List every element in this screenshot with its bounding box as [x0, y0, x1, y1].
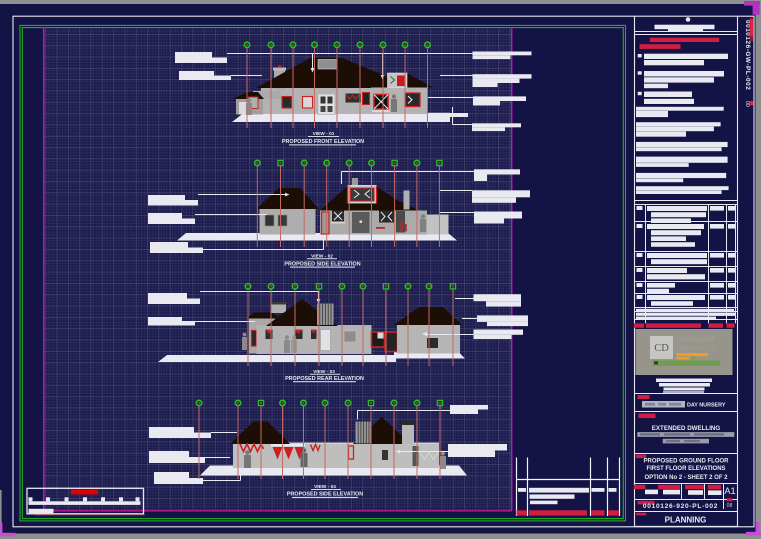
svg-text:00: 00 [744, 101, 750, 107]
svg-text:0010126-GW-PL-002: 0010126-GW-PL-002 [744, 20, 751, 90]
svg-text:CD: CD [654, 343, 669, 354]
svg-text:DAY NURSERY: DAY NURSERY [687, 402, 726, 408]
svg-text:CADRALINE: CADRALINE [676, 337, 716, 344]
svg-text:DESIGN LTD: DESIGN LTD [676, 345, 718, 352]
svg-text:PROPOSED FRONT ELEVATION: PROPOSED FRONT ELEVATION [282, 139, 364, 145]
svg-text:EXTENDED DWELLING: EXTENDED DWELLING [652, 425, 721, 432]
svg-text:OPTION No 2 - SHEET 2 OF 2: OPTION No 2 - SHEET 2 OF 2 [644, 475, 728, 481]
svg-text:PROPOSED SIDE ELEVATION: PROPOSED SIDE ELEVATION [287, 492, 363, 498]
svg-text:08: 08 [727, 503, 733, 509]
svg-text:0010126-920-PL-002: 0010126-920-PL-002 [643, 503, 718, 510]
svg-text:PROPOSED REAR ELEVATION: PROPOSED REAR ELEVATION [285, 376, 364, 382]
svg-text:FIRST FLOOR ELEVATIONS: FIRST FLOOR ELEVATIONS [646, 466, 725, 472]
svg-text:PROPOSED SIDE ELEVATION: PROPOSED SIDE ELEVATION [284, 261, 360, 267]
svg-text:A1: A1 [724, 486, 735, 496]
svg-text:PROPOSED GROUND FLOOR: PROPOSED GROUND FLOOR [643, 459, 729, 465]
svg-text:PLANNING: PLANNING [665, 515, 707, 524]
